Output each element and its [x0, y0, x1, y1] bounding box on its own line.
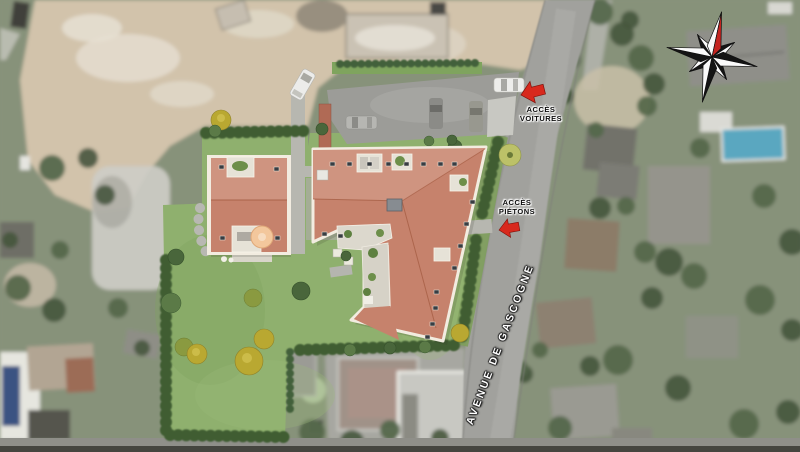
swimming-pool-left [2, 366, 20, 426]
bottom-road-shoulder [0, 438, 800, 447]
building-left [207, 155, 291, 255]
access-cars-label: ACCÈS VOITURES [509, 105, 573, 123]
dark-car-1 [429, 98, 443, 129]
dark-car-2 [469, 101, 483, 132]
house-roof [648, 166, 710, 244]
white-car [494, 78, 524, 92]
house-roof [686, 316, 738, 358]
roof-terrace [434, 248, 450, 261]
bottom-road [0, 446, 800, 452]
roof-vent [387, 199, 402, 211]
swimming-pool-right [721, 127, 784, 161]
access-cars-label-line2: VOITURES [520, 114, 562, 123]
house-roof [564, 218, 619, 272]
site-plan-map-image [0, 0, 800, 452]
grey-car [346, 116, 377, 129]
access-pedestrians-label-line2: PIÉTONS [499, 207, 535, 216]
aerial-site-plan: ACCÈS VOITURES ACCÈS PIÉTONS AVENUE DE G… [0, 0, 800, 452]
access-cars-label-line1: ACCÈS [527, 105, 556, 114]
access-pedestrians-label: ACCÈS PIÉTONS [485, 198, 549, 216]
house-roof [536, 297, 597, 349]
access-pedestrians-label-line1: ACCÈS [503, 198, 532, 207]
